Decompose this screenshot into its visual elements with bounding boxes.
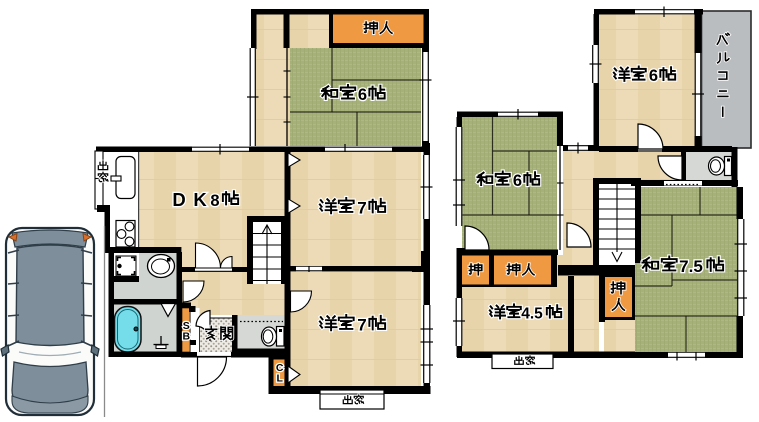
svg-text:B: B [183, 331, 191, 343]
svg-text:4.5: 4.5 [521, 306, 543, 323]
svg-text:6: 6 [513, 172, 522, 190]
svg-text:L: L [276, 373, 283, 385]
svg-text:K: K [193, 189, 207, 210]
svg-text:7: 7 [357, 316, 366, 335]
svg-text:7.5: 7.5 [679, 257, 703, 276]
svg-text:6: 6 [358, 86, 367, 104]
svg-text:8: 8 [210, 192, 219, 210]
svg-text:7: 7 [357, 199, 366, 218]
svg-text:D: D [172, 189, 185, 210]
svg-text:6: 6 [649, 67, 658, 85]
